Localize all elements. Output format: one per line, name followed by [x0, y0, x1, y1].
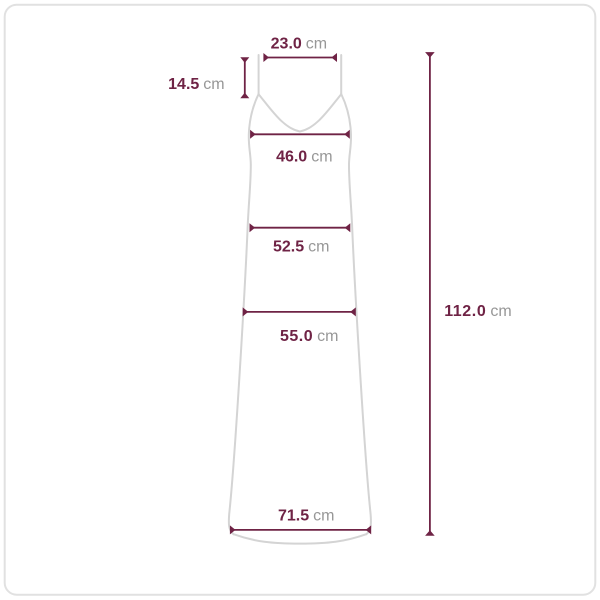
svg-text:14.5cm: 14.5cm [168, 76, 224, 93]
svg-text:71.5cm: 71.5cm [278, 507, 334, 524]
svg-text:23.0cm: 23.0cm [271, 36, 327, 53]
svg-text:52.5cm: 52.5cm [273, 239, 329, 256]
svg-text:46.0cm: 46.0cm [276, 149, 332, 166]
svg-text:112.0cm: 112.0cm [444, 303, 511, 320]
svg-text:55.0cm: 55.0cm [280, 328, 338, 345]
